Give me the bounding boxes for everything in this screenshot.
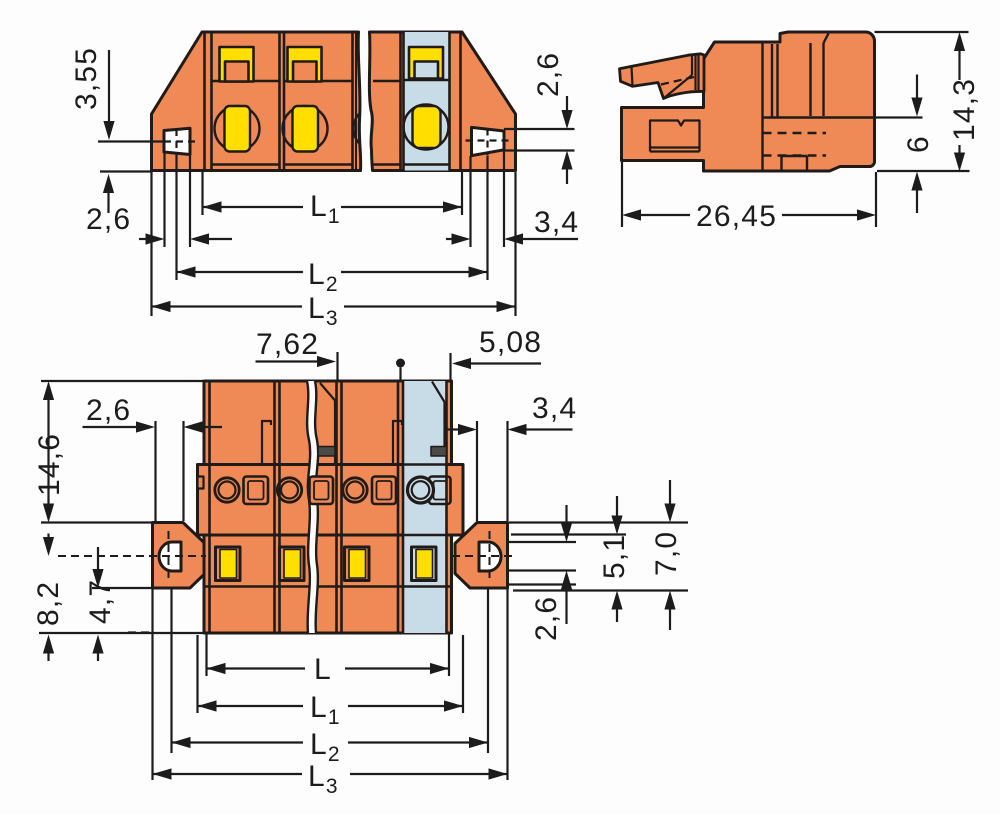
svg-text:6: 6 [902,135,935,153]
svg-text:2,6: 2,6 [532,52,565,97]
svg-text:7,62: 7,62 [256,328,319,361]
svg-text:2,6: 2,6 [530,596,563,641]
svg-text:L: L [314,653,332,686]
svg-text:7,0: 7,0 [650,531,683,576]
svg-text:2,6: 2,6 [86,203,131,236]
svg-text:5,1: 5,1 [598,534,631,579]
svg-text:14,3: 14,3 [948,78,981,141]
svg-text:14,6: 14,6 [33,433,66,496]
svg-text:3,55: 3,55 [70,47,103,110]
svg-text:26,45: 26,45 [696,200,777,233]
svg-text:5,08: 5,08 [479,326,542,359]
svg-text:3,4: 3,4 [532,392,577,425]
svg-text:3,4: 3,4 [534,206,579,239]
svg-text:2,6: 2,6 [86,394,131,427]
svg-text:4,7: 4,7 [84,579,117,624]
svg-text:8,2: 8,2 [32,581,65,626]
